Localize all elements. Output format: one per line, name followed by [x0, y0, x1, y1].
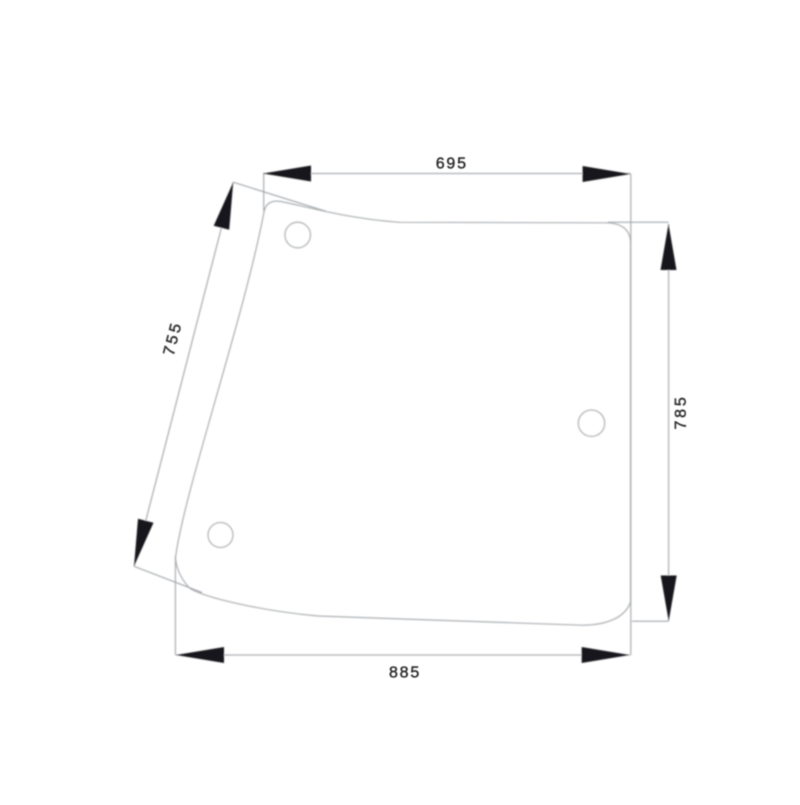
svg-text:755: 755	[161, 319, 186, 357]
svg-text:695: 695	[436, 155, 468, 172]
svg-text:785: 785	[673, 394, 690, 429]
svg-text:885: 885	[389, 665, 421, 682]
